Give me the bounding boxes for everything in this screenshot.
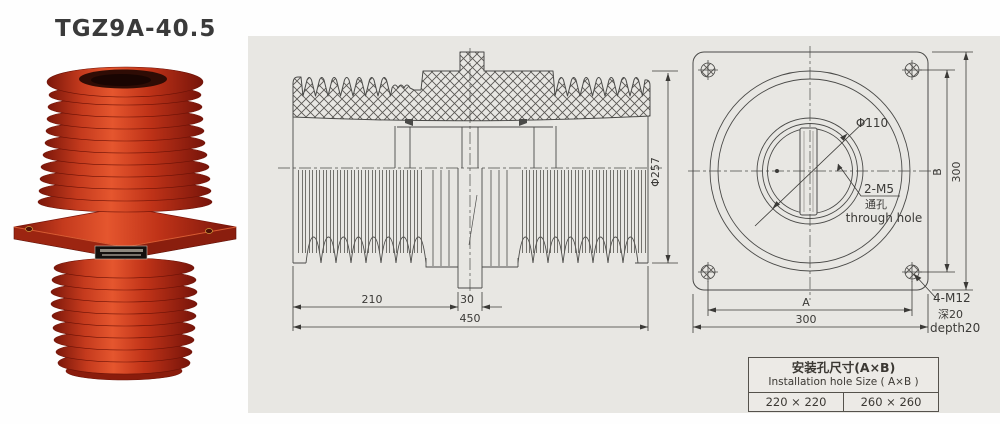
dim-450: 450 <box>460 312 481 325</box>
label-depth20: depth20 <box>930 321 980 335</box>
product-photo <box>14 67 236 380</box>
table-value-220x220: 220 × 220 <box>749 393 844 411</box>
photo-upper-ribs <box>38 85 212 212</box>
clamp-tab <box>405 119 413 126</box>
installation-hole-table: 安装孔尺寸(A×B) Installation hole Size ( A×B … <box>748 357 939 412</box>
shed-cross-section <box>293 52 650 121</box>
rib-lines-left <box>296 170 423 253</box>
table-header-en: Installation hole Size ( A×B ) <box>749 376 938 389</box>
dim-b: B <box>931 168 944 176</box>
dim-30: 30 <box>460 293 474 306</box>
nameplate <box>95 246 147 259</box>
neck-outline <box>395 126 556 168</box>
table-value-260x260: 260 × 260 <box>844 393 938 411</box>
rib-lines-right <box>520 170 646 253</box>
label-through-hole: through hole <box>846 211 923 225</box>
table-header-cn: 安装孔尺寸(A×B) <box>749 360 938 376</box>
label-tongkong: 通孔 <box>865 198 887 211</box>
front-view <box>688 46 938 300</box>
dim-300-vertical: 300 <box>950 162 963 183</box>
label-2-m5: 2-M5 <box>864 182 894 196</box>
section-view <box>278 48 662 298</box>
flange-bolt-hole <box>26 227 33 232</box>
photo-lower-ribs <box>51 258 197 380</box>
clamp-tab <box>519 119 527 126</box>
dim-phi110: Φ110 <box>856 116 888 130</box>
dim-300-horizontal: 300 <box>796 313 817 326</box>
label-shen20: 深20 <box>938 308 963 321</box>
center-slot <box>800 128 817 215</box>
table-header: 安装孔尺寸(A×B) Installation hole Size ( A×B … <box>749 358 938 393</box>
datasheet-page: TGZ9A-40.5 <box>0 0 1000 424</box>
m5-hole-dot <box>775 169 779 173</box>
photo-top-opening <box>47 67 203 97</box>
dim-diameter-257: Φ257 <box>649 157 662 187</box>
photo-flange <box>14 207 236 259</box>
table-row: 220 × 220 260 × 260 <box>749 393 938 411</box>
dim-210: 210 <box>362 293 383 306</box>
dim-a: A <box>802 296 810 309</box>
front-dimensions: Φ110 2-M5 通孔 through hole B 300 A 300 4-… <box>693 52 980 335</box>
flange-bolt-hole <box>206 229 213 234</box>
label-4-m12: 4-M12 <box>933 291 971 305</box>
